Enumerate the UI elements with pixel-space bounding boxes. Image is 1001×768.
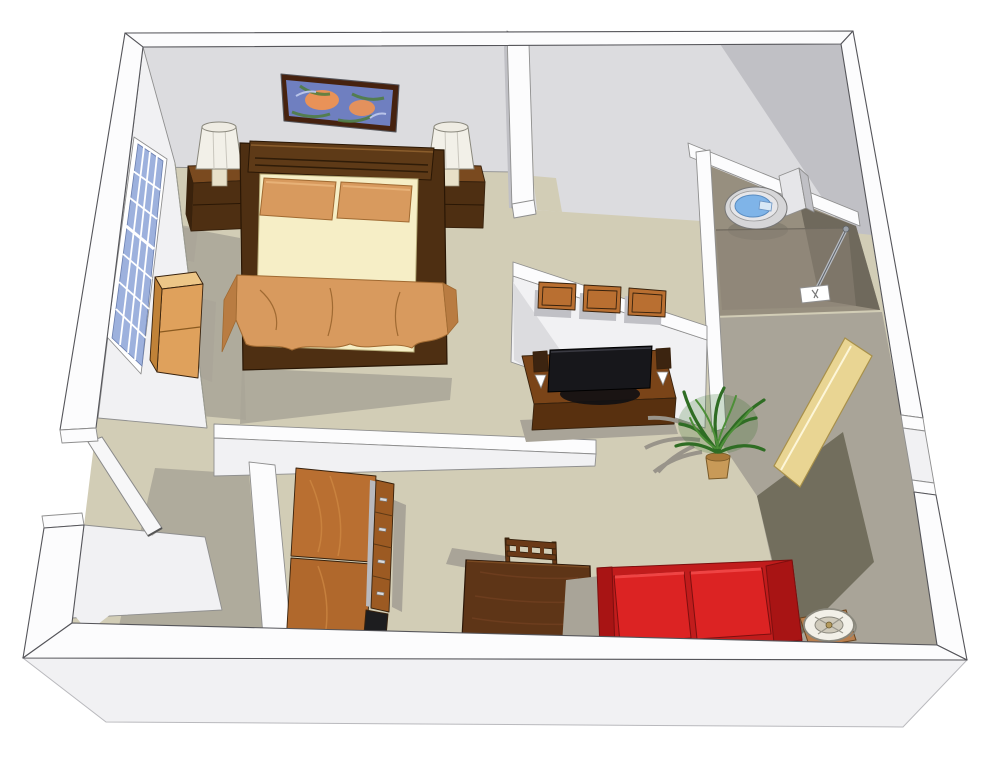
floorplan-canvas xyxy=(0,0,1001,768)
speaker-left xyxy=(533,351,548,372)
shower-glass xyxy=(716,228,856,310)
sofa-cushion-right xyxy=(690,568,771,639)
queen-bed xyxy=(222,141,458,370)
kitchen-cabinet-upper xyxy=(291,468,376,562)
apartment-3d-floorplan xyxy=(0,0,1001,768)
lamp-left-base xyxy=(212,169,227,186)
dresser xyxy=(150,272,203,378)
lamp-left-shade xyxy=(196,127,242,169)
south-wall-outer-face xyxy=(23,658,967,727)
media-console xyxy=(520,346,678,442)
bed-blanket xyxy=(236,275,448,350)
flat-tv xyxy=(548,346,652,392)
lamp-right-base xyxy=(444,169,459,186)
shower-rod-mount xyxy=(843,226,849,232)
west-door-jamb-upper xyxy=(60,428,98,443)
wall-art-flower2 xyxy=(349,100,375,116)
sofa-cushion-left xyxy=(614,572,691,643)
speaker-right xyxy=(656,348,671,369)
north-wall-top xyxy=(125,31,853,47)
accent-lamp-finial xyxy=(826,622,832,628)
toilet-flapper xyxy=(759,201,772,211)
